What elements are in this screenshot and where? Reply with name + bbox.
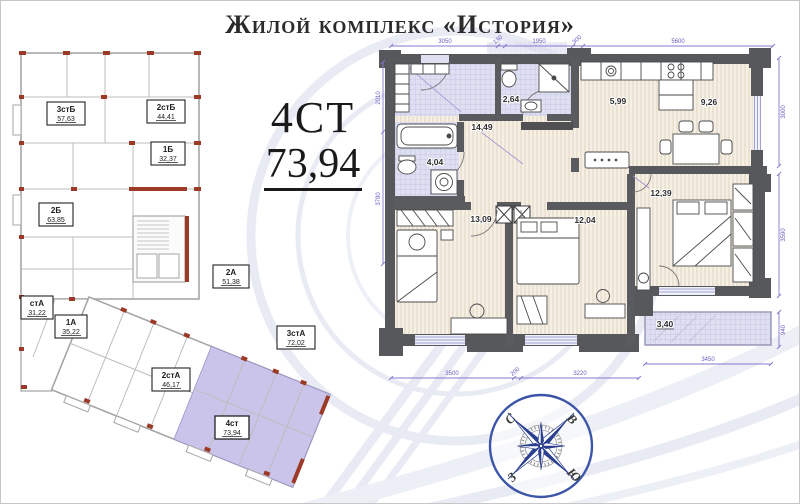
dim-top-4: 300 [572,34,584,45]
dim-top-5: 5600 [671,39,685,45]
apartment-name: 1Б [163,145,173,154]
bench-sofa [585,152,629,168]
room-area-bedroom2: 12,04 [574,215,596,225]
room-area-bathroom: 4,04 [427,157,444,167]
apartment-area: 63,85 [47,217,65,224]
apartment-area: 46,17 [162,382,180,389]
dim-balcony-width: 3450 [701,357,715,363]
dim-bottom-3: 3220 [573,371,587,377]
sink-bath [398,156,416,174]
window-kitchen [753,96,761,150]
sink-wc [521,100,541,112]
apartment-label: 2стА 46,17 [152,368,190,391]
common-corridor [487,42,567,54]
dim-right-1: 3000 [781,105,787,119]
dim-top-1: 3050 [438,39,452,45]
apartment-name: 1А [66,318,76,327]
brochure-page: Жилой комплекс «История» 4СТ 73,94 [0,0,800,504]
apartment-area: 57,63 [57,116,75,123]
apartment-name: 2Б [51,206,61,215]
apartment-area: 72,02 [287,340,305,347]
apartment-name: 2стБ [157,103,176,112]
entry-door-gap [421,55,449,63]
apartment-label: 1А 35,22 [55,315,87,338]
dim-top-3: 1950 [532,39,546,45]
apartment-name: 2стА [162,371,181,380]
room-area-hallway: 14,49 [471,122,493,132]
apartment-name: 2А [226,268,236,277]
room-area-dining: 9,26 [701,97,718,107]
apartment-name: 3стБ [57,105,76,114]
floor-overview-plan: 3стБ 57,63 2стБ 44,41 1Б 32,37 2Б 63,85 [9,47,357,499]
window-bedroom2 [525,335,577,345]
overview-angled-wing [49,294,332,494]
dim-right-3: 940 [781,324,787,335]
apartment-name: 3стА [287,329,306,338]
washing-machine [431,170,457,194]
dim-right-2: 3590 [781,228,787,242]
apartment-name: стА [30,299,44,308]
window-bedroom1 [415,335,465,345]
apartment-area: 51,38 [222,279,240,286]
dim-left-2: 3780 [376,192,382,206]
apartment-label: стА 31,22 [21,296,53,319]
apartment-name: 4ст [226,419,239,428]
room-area-living: 12,39 [650,188,672,198]
room-area-balcony: 3,40 [657,319,674,329]
dim-bottom-1: 3500 [445,371,459,377]
dim-left-1: 2010 [376,91,382,105]
bathtub [397,124,457,148]
apartment-area: 35,22 [62,329,80,336]
compass-rose: С В Ю З [479,389,603,503]
tv-console-hall [521,122,573,130]
room-area-kitchen: 5,99 [610,96,627,106]
apartment-detail-plan: 14,49 2,64 4,04 5,99 9,26 12,39 13,09 12… [375,34,799,392]
stairwell [133,216,185,282]
apartment-label: 2А 51,38 [213,265,249,288]
room-area-wc: 2,64 [503,94,520,104]
apartment-area: 31,22 [28,310,46,317]
apartment-label: 2Б 63,85 [39,203,73,226]
apartment-label-selected: 4ст 73,94 [215,416,249,439]
apartment-label: 3стА 72,02 [277,326,315,349]
apartment-label: 2стБ 44,41 [147,100,185,123]
apartment-area: 73,94 [223,430,241,437]
apartment-area: 32,37 [159,156,177,163]
window-balcony-door [659,287,715,295]
apartment-label: 3стБ 57,63 [47,102,85,125]
room-area-bedroom1: 13,09 [470,214,492,224]
apartment-label: 1Б 32,37 [151,142,185,165]
shower [539,64,569,92]
apartment-area: 44,41 [157,114,175,121]
toilet [501,64,517,87]
